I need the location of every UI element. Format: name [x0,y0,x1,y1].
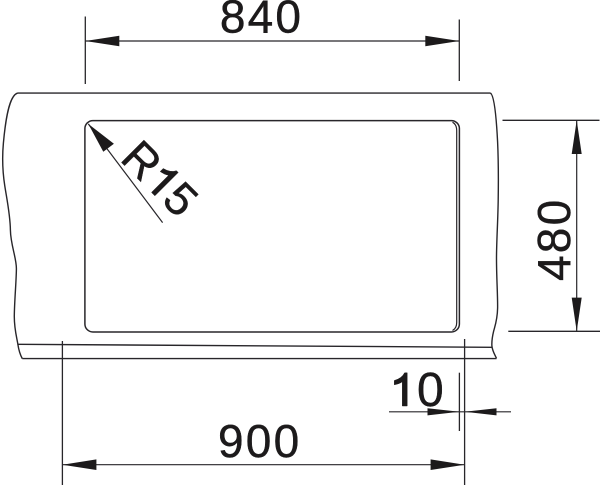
svg-text:0: 0 [417,364,444,417]
svg-text:480: 480 [528,198,580,281]
svg-text:5: 5 [153,172,208,227]
svg-text:900: 900 [218,415,301,467]
svg-text:840: 840 [220,0,303,43]
